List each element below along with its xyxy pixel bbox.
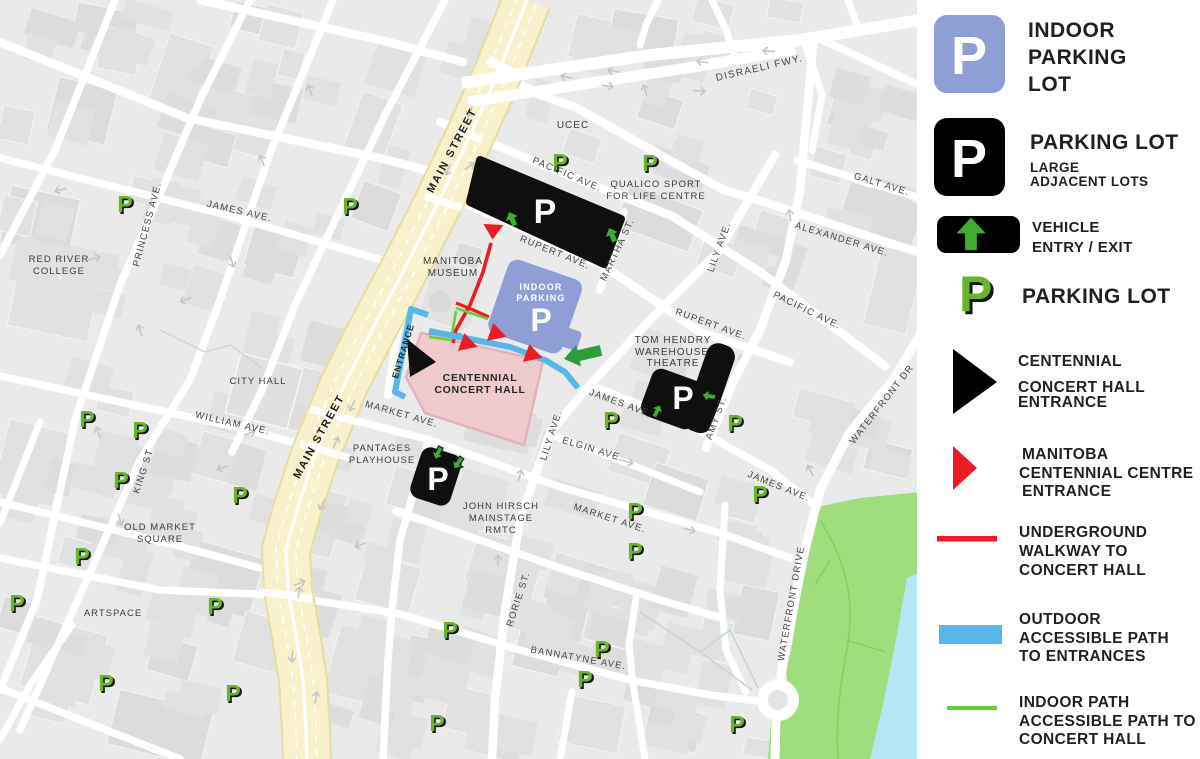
svg-text:ENTRANCE: ENTRANCE: [1022, 483, 1111, 500]
svg-text:INDOOR: INDOOR: [1028, 19, 1115, 42]
svg-text:P: P: [79, 406, 94, 432]
svg-text:UNDERGROUND: UNDERGROUND: [1019, 524, 1147, 541]
svg-text:P: P: [232, 482, 247, 508]
svg-text:CITY HALL: CITY HALL: [230, 376, 287, 387]
svg-text:PARKING LOT: PARKING LOT: [1030, 131, 1179, 154]
svg-text:P: P: [342, 193, 357, 219]
svg-text:TO ENTRANCES: TO ENTRANCES: [1019, 648, 1146, 665]
svg-text:P: P: [627, 538, 642, 564]
svg-text:ACCESSIBLE PATH: ACCESSIBLE PATH: [1019, 630, 1169, 647]
svg-text:CONCERT HALL: CONCERT HALL: [1019, 562, 1146, 579]
svg-text:P: P: [727, 410, 742, 436]
svg-text:MAINSTAGE: MAINSTAGE: [469, 513, 533, 524]
svg-text:P: P: [132, 417, 147, 443]
svg-text:P: P: [729, 711, 744, 737]
svg-text:CENTENNIAL: CENTENNIAL: [443, 372, 518, 384]
svg-text:P: P: [113, 467, 128, 493]
svg-text:P: P: [959, 266, 992, 322]
svg-text:P: P: [530, 302, 551, 338]
svg-text:ADJACENT LOTS: ADJACENT LOTS: [1030, 174, 1148, 189]
svg-text:P: P: [98, 670, 113, 696]
svg-text:P: P: [577, 666, 592, 692]
svg-text:FOR LIFE CENTRE: FOR LIFE CENTRE: [606, 191, 705, 202]
svg-text:TOM HENDRY: TOM HENDRY: [635, 335, 712, 346]
svg-text:P: P: [672, 380, 693, 416]
svg-text:P: P: [427, 461, 448, 497]
svg-text:P: P: [207, 593, 222, 619]
svg-text:VEHICLE: VEHICLE: [1032, 219, 1100, 236]
svg-text:COLLEGE: COLLEGE: [33, 266, 85, 277]
svg-text:THEATRE: THEATRE: [647, 358, 700, 369]
svg-text:PARKING: PARKING: [1028, 46, 1127, 69]
svg-text:P: P: [9, 590, 24, 616]
svg-text:P: P: [429, 710, 444, 736]
svg-text:PANTAGES: PANTAGES: [353, 443, 411, 454]
svg-text:QUALICO SPORT: QUALICO SPORT: [611, 179, 702, 190]
svg-text:OLD MARKET: OLD MARKET: [124, 522, 196, 533]
svg-text:INDOOR: INDOOR: [519, 282, 562, 292]
svg-text:P: P: [225, 680, 240, 706]
svg-text:INDOOR PATH: INDOOR PATH: [1019, 694, 1130, 711]
svg-text:PLAYHOUSE: PLAYHOUSE: [349, 455, 415, 466]
svg-text:P: P: [603, 407, 618, 433]
svg-text:MANITOBA: MANITOBA: [423, 256, 483, 267]
svg-text:P: P: [951, 129, 987, 189]
svg-text:P: P: [117, 191, 132, 217]
svg-text:SQUARE: SQUARE: [137, 534, 183, 545]
svg-text:ARTSPACE: ARTSPACE: [84, 608, 142, 619]
svg-text:JOHN HIRSCH: JOHN HIRSCH: [463, 501, 539, 512]
svg-text:P: P: [951, 26, 987, 86]
svg-text:ACCESSIBLE PATH TO: ACCESSIBLE PATH TO: [1019, 713, 1196, 730]
svg-text:WAREHOUSE: WAREHOUSE: [635, 347, 709, 358]
svg-text:MANITOBA: MANITOBA: [1022, 446, 1108, 463]
svg-text:P: P: [74, 543, 89, 569]
svg-text:ENTRANCE: ENTRANCE: [1018, 394, 1107, 411]
svg-text:P: P: [642, 150, 657, 176]
svg-text:CENTENNIAL: CENTENNIAL: [1018, 353, 1122, 370]
svg-text:OUTDOOR: OUTDOOR: [1019, 611, 1101, 628]
svg-text:CONCERT HALL: CONCERT HALL: [434, 384, 525, 396]
svg-text:LOT: LOT: [1028, 73, 1072, 96]
svg-text:RED RIVER: RED RIVER: [29, 254, 90, 265]
svg-text:LARGE: LARGE: [1030, 160, 1079, 175]
svg-text:CENTENNIAL CENTRE: CENTENNIAL CENTRE: [1019, 465, 1193, 482]
svg-text:WALKWAY TO: WALKWAY TO: [1019, 543, 1128, 560]
svg-text:CONCERT HALL: CONCERT HALL: [1019, 731, 1146, 748]
svg-text:P: P: [442, 617, 457, 643]
svg-text:PARKING LOT: PARKING LOT: [1022, 285, 1171, 308]
svg-text:MUSEUM: MUSEUM: [428, 268, 478, 279]
svg-text:UCEC: UCEC: [557, 120, 589, 131]
svg-text:ENTRY / EXIT: ENTRY / EXIT: [1032, 239, 1133, 256]
svg-text:P: P: [534, 193, 557, 231]
svg-text:RMTC: RMTC: [485, 525, 516, 536]
